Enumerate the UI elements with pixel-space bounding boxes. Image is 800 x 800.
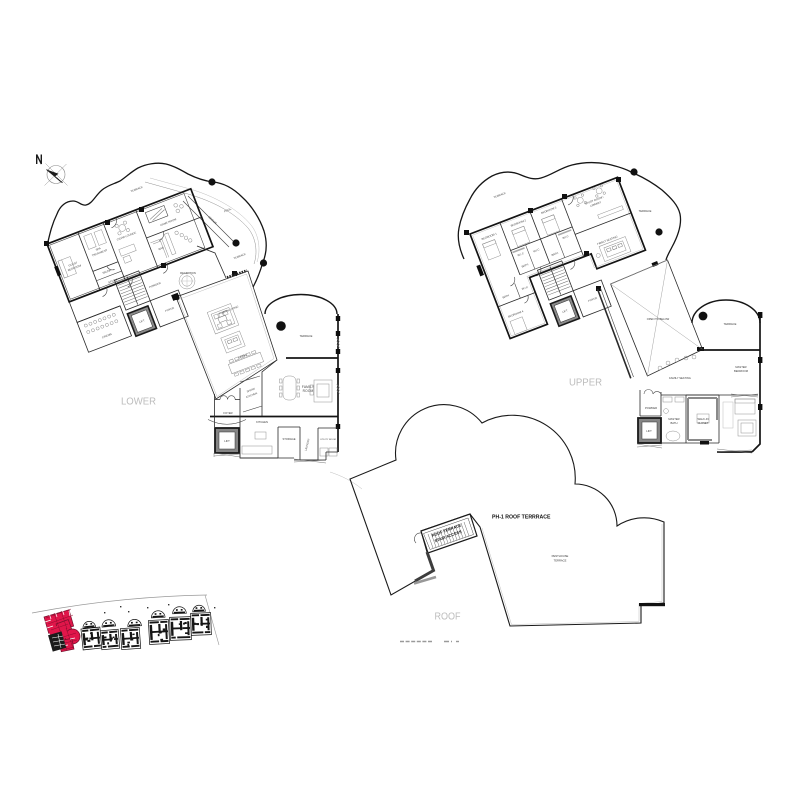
svg-text:TERRACE: TERRACE [639,209,652,213]
svg-text:LIFT: LIFT [646,429,652,433]
svg-text:UTILITY ROOM: UTILITY ROOM [320,439,336,441]
svg-text:LIFT: LIFT [224,439,230,443]
svg-text:OPEN TO BELOW: OPEN TO BELOW [647,317,670,321]
svg-text:POWDER: POWDER [645,406,657,410]
svg-text:LOWER: LOWER [121,397,156,408]
svg-text:TERRACE: TERRACE [724,322,737,326]
svg-text:TERRACE: TERRACE [554,559,567,563]
svg-text:TERRACE: TERRACE [300,334,313,338]
svg-text:KITCHEN: KITCHEN [256,420,268,424]
svg-text:UPPER: UPPER [569,378,602,389]
svg-text:FOYER: FOYER [223,411,232,415]
svg-text:STORAGE: STORAGE [282,437,295,441]
svg-text:ROOF: ROOF [435,612,461,623]
svg-text:ROOM: ROOM [303,389,314,393]
svg-text:MASTER: MASTER [668,417,679,421]
svg-text:CLOSET: CLOSET [698,421,709,425]
svg-text:FAMILY SEATING: FAMILY SEATING [669,376,691,380]
svg-text:MASTER: MASTER [735,365,746,369]
svg-text:BATH: BATH [671,421,678,425]
svg-text:PENTHOUSE: PENTHOUSE [552,554,569,558]
svg-text:WALK-IN: WALK-IN [697,417,708,421]
svg-text:BEDROOM: BEDROOM [734,369,749,373]
svg-text:PH-1 ROOF TERRRACE: PH-1 ROOF TERRRACE [492,515,551,521]
